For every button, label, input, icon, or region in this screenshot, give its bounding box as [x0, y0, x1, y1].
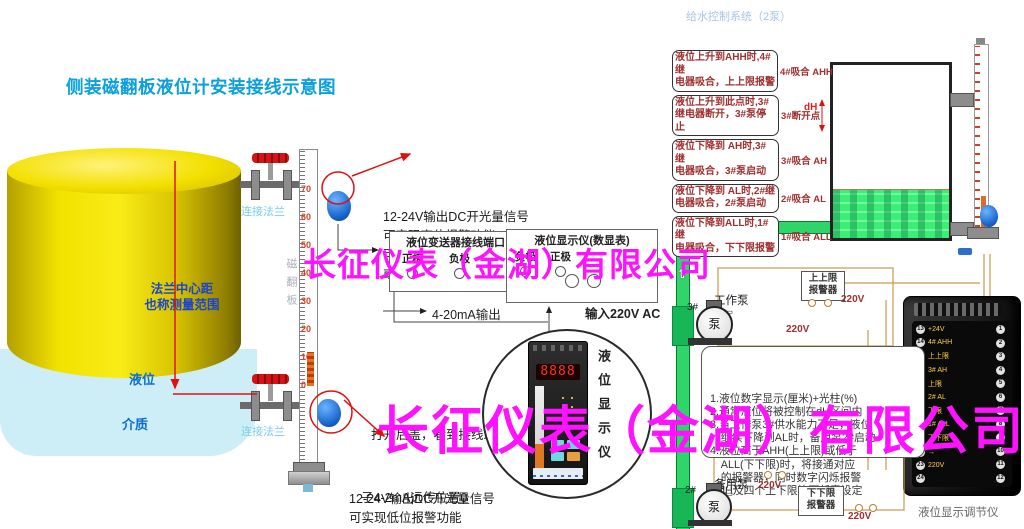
tank-cylinder-top [7, 148, 241, 194]
terminal-label: 上上限 [928, 351, 949, 361]
pump2-number: 2# [685, 485, 696, 496]
terminal-row: 2 [996, 339, 1008, 348]
wire-terminal-dot [764, 471, 772, 479]
relay-state-label: 2#吸合 AL [781, 191, 832, 205]
gauge-scale-number: 30 [301, 296, 315, 306]
terminal-label: 4# AHH [928, 339, 952, 346]
voltage-label: 220V [758, 480, 781, 491]
wire-terminal-dot [778, 471, 786, 479]
voltage-label: 220V [786, 324, 809, 335]
flange-plate [283, 391, 292, 421]
gauge-scale-number: 60 [301, 212, 315, 222]
range-line2: 也称测量范围 [134, 297, 230, 313]
relay-rule-box: 液位上升到此点时,3# 继电器断开，3#泵停止 [672, 95, 779, 137]
terminal-row: 13 +24V [916, 325, 982, 334]
terminal-number: 13 [916, 325, 925, 334]
valve-stem [268, 383, 273, 401]
voltage-label: 220V [841, 294, 864, 305]
alarm-low-line2: 报警器 [799, 500, 843, 512]
relay-rule-box: 液位下降到 AH时,3#继 电器吸合，3#泵启动 [672, 139, 779, 181]
relay-rule-row: 液位下降到 AL时,2#继 电器吸合，2#泵启动 2#吸合 AL [672, 184, 832, 213]
terminal-row: 24 [916, 474, 982, 483]
level-label: 液位 [129, 369, 155, 388]
diagram-canvas: 法兰中心距 也称测量范围 液位 介质 连接法兰 连接法兰 70605040302… [0, 0, 1024, 529]
transmitter-to-controller-wires [984, 254, 990, 296]
drain-valve [958, 248, 972, 255]
rule-line1: 液位上升到此点时,3# [675, 97, 776, 110]
gauge-scale-number: 20 [301, 324, 315, 334]
valve-stem [268, 162, 273, 180]
relay-rule-row: 液位下降到 AH时,3#继 电器吸合，3#泵启动 3#吸合 AH [672, 139, 832, 181]
wire-terminal-dot [808, 299, 816, 307]
instrument-label-strip [533, 468, 583, 479]
relay-state-label: 4#吸合 AHH [780, 64, 832, 78]
terminal-row: 4 [996, 366, 1008, 375]
terminal-row: 16 3# AH [916, 366, 982, 375]
relay-rule-row: 液位上升到此点时,3# 继电器断开，3#泵停止 3#断开点 [672, 95, 832, 137]
gauge-side-text: 磁翻板 [283, 258, 299, 338]
note-line: 可实现低位报警功能 [349, 509, 562, 529]
gauge-drain-tip [303, 484, 313, 492]
note-line: 12-24V输出DC开光量信号 [349, 490, 562, 510]
terminal-row: 15 上上限 [916, 351, 982, 361]
process-pipe-bottom [240, 402, 302, 409]
transmitter-bottom [317, 399, 341, 427]
alarm-low-box: 下下限 报警器 [798, 486, 844, 516]
terminal-label: 上限 [928, 379, 942, 389]
rule-line2: 电器吸合，上上限报警 [675, 77, 775, 90]
terminal-label: +24V [928, 326, 945, 333]
alarm-low-line1: 下下限 [799, 488, 843, 500]
terminal-label: 3# AH [928, 367, 947, 374]
flange-label-bottom: 连接法兰 [241, 423, 285, 439]
medium-label: 介质 [122, 414, 148, 433]
terminal-number: 12 [996, 474, 1005, 483]
gauge-base [288, 471, 330, 485]
terminal-number: 4 [996, 366, 1005, 375]
gauge-flap-indicator [307, 352, 314, 386]
rule-line1: 液位上升到AHH时,4#继 [675, 52, 775, 77]
terminal-row: 17 上限 [916, 379, 982, 389]
page-title: 侧装磁翻板液位计安装接线示意图 [66, 74, 336, 99]
controller-vents [914, 303, 1002, 316]
terminal-number: 5 [996, 379, 1005, 388]
terminal-number: 24 [916, 474, 925, 483]
relay-rule-box: 液位下降到 AL时,2#继 电器吸合，2#泵启动 [672, 184, 779, 213]
relay-rule-box: 液位上升到AHH时,4#继 电器吸合，上上限报警 [672, 50, 778, 92]
valve-handwheel-icon [252, 153, 289, 163]
terminal-number: 2 [996, 339, 1005, 348]
gauge-scale-number: 70 [301, 184, 315, 194]
tank-gauge-bottom-flange [967, 227, 999, 239]
pump3-number: 3# [687, 302, 698, 313]
pump3-base [688, 338, 732, 345]
tank-gauge-flange-top [950, 93, 974, 107]
terminal-number: 3 [996, 352, 1005, 361]
terminal-row: 1 [996, 325, 1008, 334]
note-line: 12-24V输出DC开光量信号 [383, 208, 596, 227]
watermark-text: 长征仪表（金湖）有限公司 [377, 389, 1024, 464]
instrument-display: 8888 [536, 364, 580, 380]
relay-rule-row: 液位上升到AHH时,4#继 电器吸合，上上限报警 4#吸合 AHH [672, 50, 832, 92]
rule-line2: 电器吸合，2#泵启动 [675, 198, 776, 211]
rule-line1: 液位下降到 AL时,2#继 [675, 186, 776, 199]
terminal-row: 12 [996, 474, 1008, 483]
rule-line2: 电器吸合，3#泵启动 [675, 166, 776, 179]
dh-label: dH [804, 102, 817, 113]
alarm-high-line2: 报警器 [802, 285, 844, 297]
water-tank [830, 62, 952, 241]
relay-state-label: 1#吸合 ALL [781, 229, 832, 243]
tank-gauge-ticks [975, 46, 980, 234]
alarm-high-box: 上上限 报警器 [801, 271, 845, 301]
wire-terminal-dot [824, 299, 832, 307]
range-line1: 法兰中心距 [134, 281, 230, 297]
flange-plate [251, 170, 260, 200]
watermark-text: 长征仪表（金湖）有限公司 [303, 238, 711, 286]
process-pipe-top [240, 181, 302, 188]
relay-logic-list: 液位上升到AHH时,4#继 电器吸合，上上限报警 4#吸合 AHH 液位上升到此… [672, 50, 832, 257]
water-tank-liquid [833, 189, 949, 238]
rule-line1: 液位下降到 AH时,3#继 [675, 141, 776, 166]
pump2-base [688, 520, 732, 526]
flange-plate [251, 391, 260, 421]
output-4-20ma-label: 4-20mA输出 [432, 304, 501, 323]
rule-line2: 继电器断开，3#泵停止 [675, 109, 776, 134]
tank-cylinder-body [7, 170, 241, 378]
terminal-number: 1 [996, 325, 1005, 334]
terminal-row: 14 4# AHH [916, 338, 982, 347]
alarm-high-line1: 上上限 [802, 273, 844, 285]
voltage-label: 220V [848, 511, 871, 522]
terminal-row: 3 [996, 352, 1008, 361]
transmitter-top [327, 191, 351, 221]
faint-subtitle: 给水控制系统（2泵） [686, 8, 791, 24]
relay-state-label: 3#吸合 AH [781, 153, 832, 167]
valve-handwheel-icon [252, 374, 289, 384]
tank-transmitter [980, 205, 998, 227]
controller-caption: 液位显示调节仪 [918, 504, 999, 520]
ac-input-label: 输入220V AC [585, 303, 660, 322]
instrument-header-strip [533, 345, 583, 351]
terminal-row: 5 [996, 379, 1008, 388]
flange-plate [283, 170, 292, 200]
flange-label-top: 连接法兰 [241, 203, 285, 219]
tank-range-label: 法兰中心距 也称测量范围 [134, 281, 230, 313]
